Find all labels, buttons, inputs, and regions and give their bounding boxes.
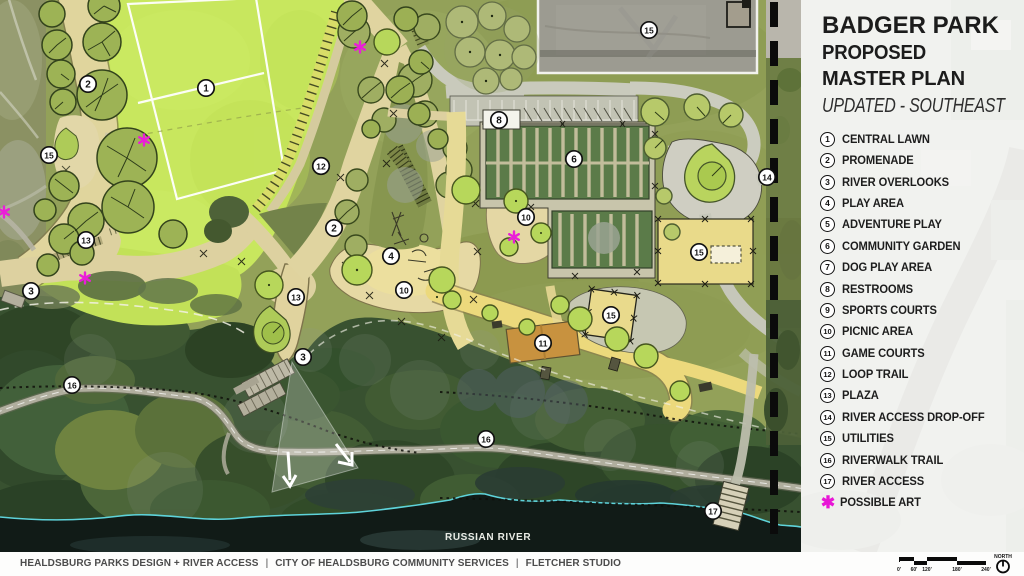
svg-text:6: 6 [571, 155, 577, 166]
svg-text:14: 14 [762, 173, 772, 183]
svg-text:15: 15 [694, 248, 704, 258]
svg-text:3: 3 [28, 287, 34, 298]
svg-text:1: 1 [203, 84, 209, 95]
svg-text:15: 15 [606, 311, 616, 321]
svg-text:RUSSIAN RIVER: RUSSIAN RIVER [445, 532, 531, 543]
svg-text:16: 16 [481, 435, 491, 445]
svg-text:13: 13 [81, 236, 91, 246]
svg-text:120': 120' [922, 567, 932, 573]
svg-text:17: 17 [708, 507, 718, 517]
svg-text:2: 2 [85, 80, 91, 91]
svg-text:NORTH: NORTH [994, 554, 1012, 560]
svg-text:180': 180' [952, 567, 962, 573]
svg-text:0': 0' [897, 567, 901, 573]
svg-text:10: 10 [399, 286, 409, 296]
svg-text:12: 12 [316, 162, 326, 172]
svg-text:3: 3 [300, 353, 306, 364]
svg-text:10: 10 [521, 213, 531, 223]
svg-text:60': 60' [911, 567, 918, 573]
svg-text:4: 4 [388, 252, 394, 263]
svg-text:11: 11 [539, 339, 548, 349]
svg-text:15: 15 [44, 151, 54, 161]
svg-text:2: 2 [331, 224, 337, 235]
svg-text:8: 8 [496, 116, 502, 127]
svg-text:13: 13 [291, 293, 301, 303]
svg-text:15: 15 [644, 26, 654, 36]
svg-text:240': 240' [981, 567, 991, 573]
svg-text:16: 16 [67, 381, 77, 391]
